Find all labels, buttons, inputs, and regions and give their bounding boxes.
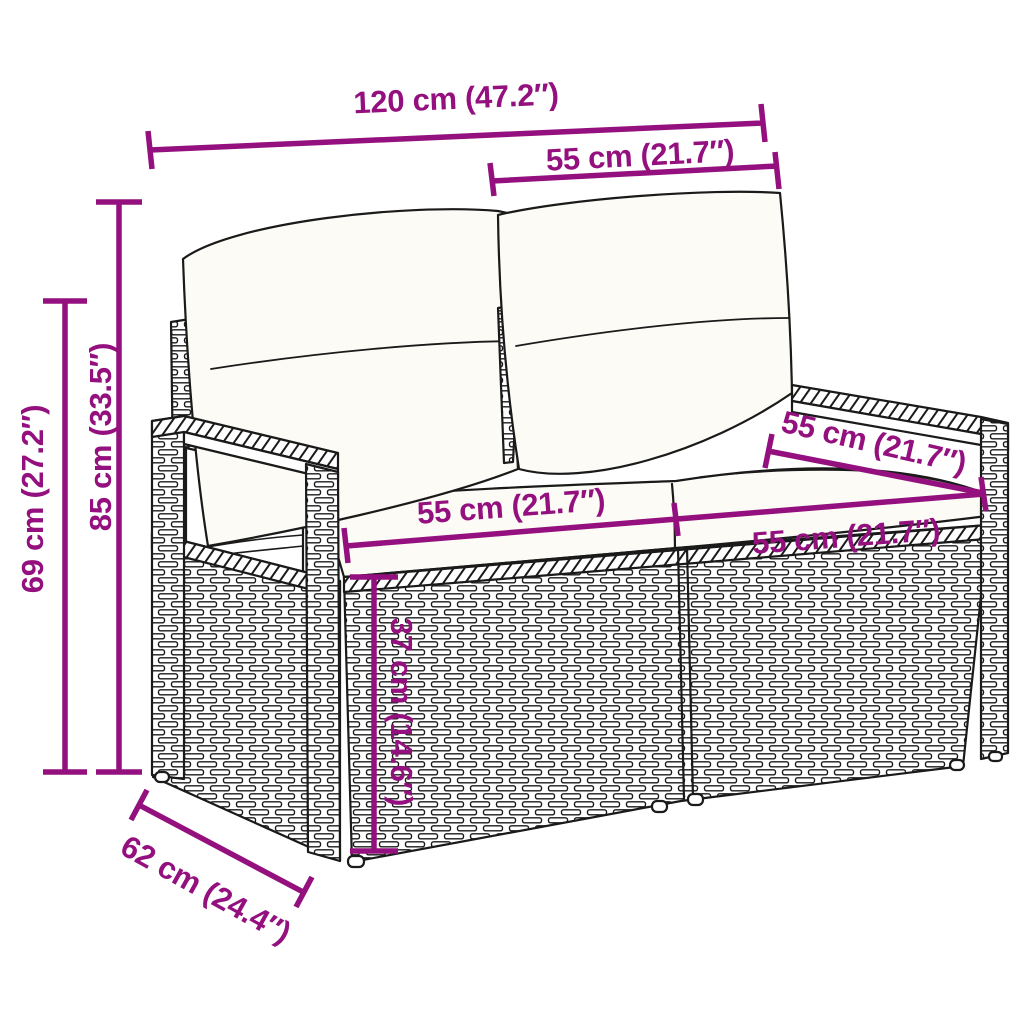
foot	[155, 772, 169, 782]
back-cushion-right	[498, 192, 792, 474]
left-armrest-side	[152, 416, 184, 779]
foot	[652, 801, 667, 812]
sofa-dimension-diagram: 120 cm (47.2″) 55 cm (21.7″) 85 cm (33.5…	[0, 0, 1024, 1024]
overall-width-label: 120 cm (47.2″)	[353, 76, 560, 120]
foot	[989, 752, 1002, 761]
overall-height-label: 85 cm (33.5″)	[83, 343, 118, 531]
right-corner-post	[981, 419, 1008, 759]
foot	[348, 856, 364, 867]
left-armrest-front-post	[306, 464, 340, 861]
foot	[950, 760, 964, 770]
base-depth-label: 62 cm (24.4″)	[115, 828, 297, 950]
seat-height-label: 37 cm (14.6″)	[384, 618, 419, 806]
foot	[688, 794, 703, 805]
armrest-height-label: 69 cm (27.2″)	[15, 405, 50, 593]
dimension-diagram-page: 120 cm (47.2″) 55 cm (21.7″) 85 cm (33.5…	[0, 0, 1024, 1024]
